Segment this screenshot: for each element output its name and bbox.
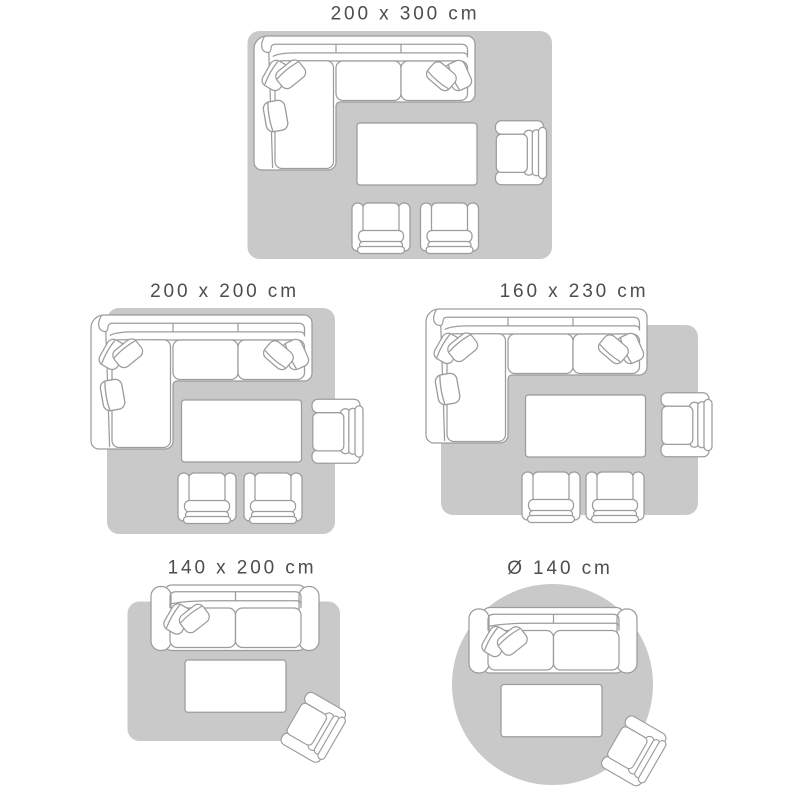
svg-text:140 x 200 cm: 140 x 200 cm (168, 558, 317, 579)
svg-text:200 x 200 cm: 200 x 200 cm (150, 281, 299, 302)
svg-text:Ø 140 cm: Ø 140 cm (507, 558, 613, 579)
svg-text:200 x 300 cm: 200 x 300 cm (331, 4, 480, 25)
svg-text:160 x 230 cm: 160 x 230 cm (500, 281, 649, 302)
